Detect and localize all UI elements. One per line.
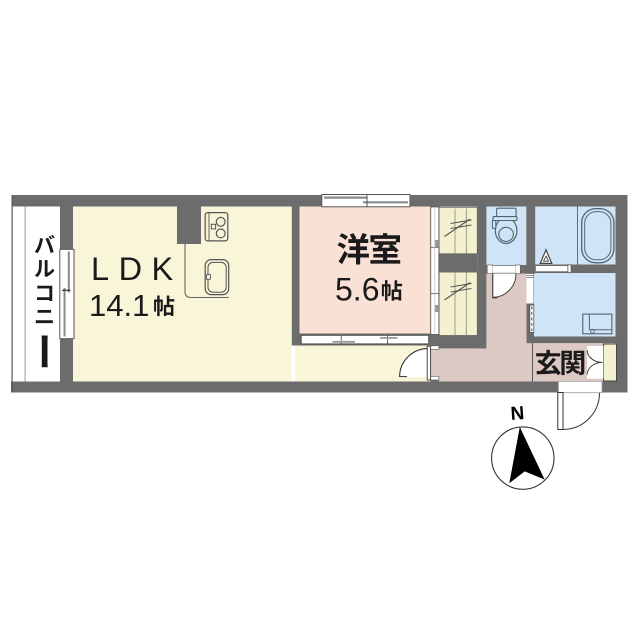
svg-text:14.1: 14.1 (89, 288, 149, 323)
svg-text:5.6: 5.6 (335, 272, 379, 308)
svg-text:LDK: LDK (91, 251, 183, 287)
svg-text:N: N (510, 403, 525, 425)
